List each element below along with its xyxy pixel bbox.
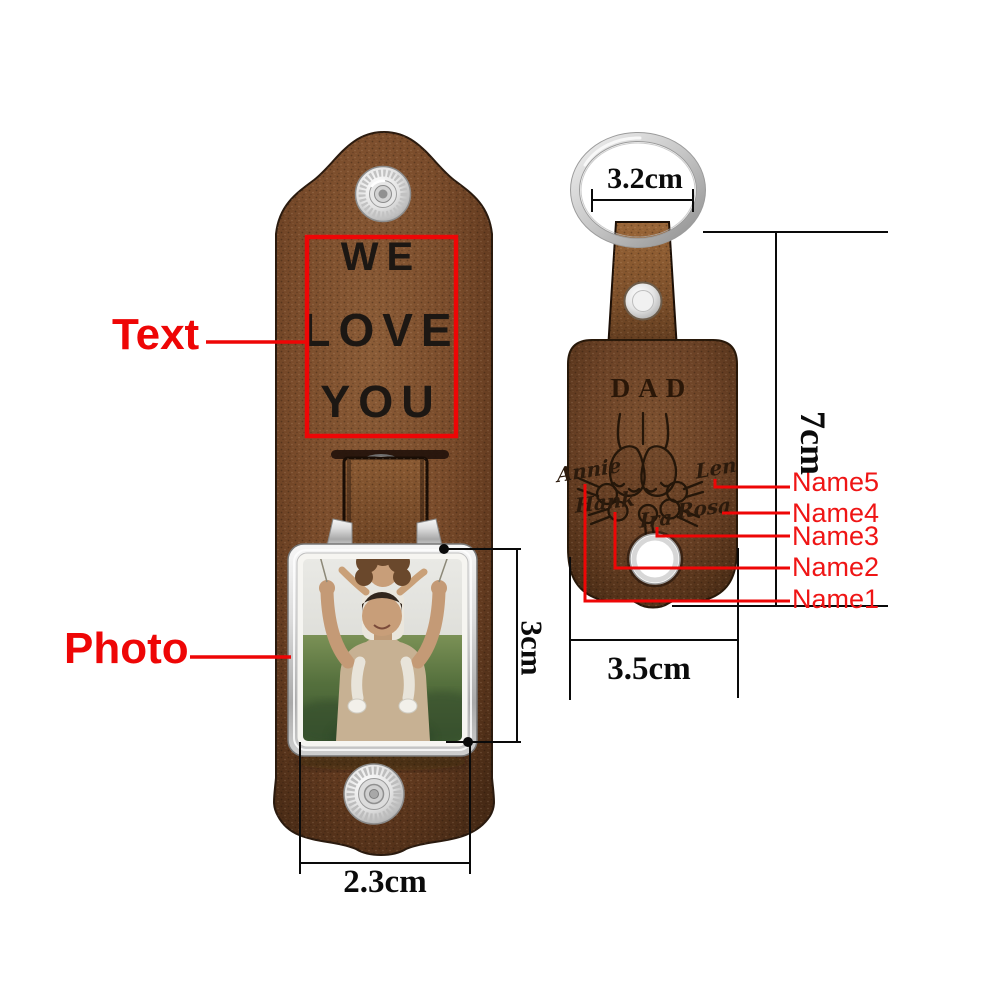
name3-label: Name3 — [792, 522, 879, 550]
photo-callout-label: Photo — [64, 626, 189, 672]
callout-lines — [190, 237, 790, 657]
ring-width-dimension: 3.2cm — [593, 163, 697, 195]
tag-height-dimension: 7cm — [793, 411, 831, 475]
name1-label: Name1 — [792, 585, 879, 613]
text-callout-label: Text — [112, 312, 199, 358]
tag-width-dimension: 3.5cm — [584, 652, 714, 687]
photo-height-dimension: 3cm — [515, 620, 548, 675]
text-area-box — [307, 237, 456, 436]
product-annotation-image: WE LOVE YOU DAD Annie Hank Ira Rosa Len — [0, 0, 1000, 1000]
strap-width-dimension: 2.3cm — [320, 865, 450, 900]
name2-label: Name2 — [792, 553, 879, 581]
